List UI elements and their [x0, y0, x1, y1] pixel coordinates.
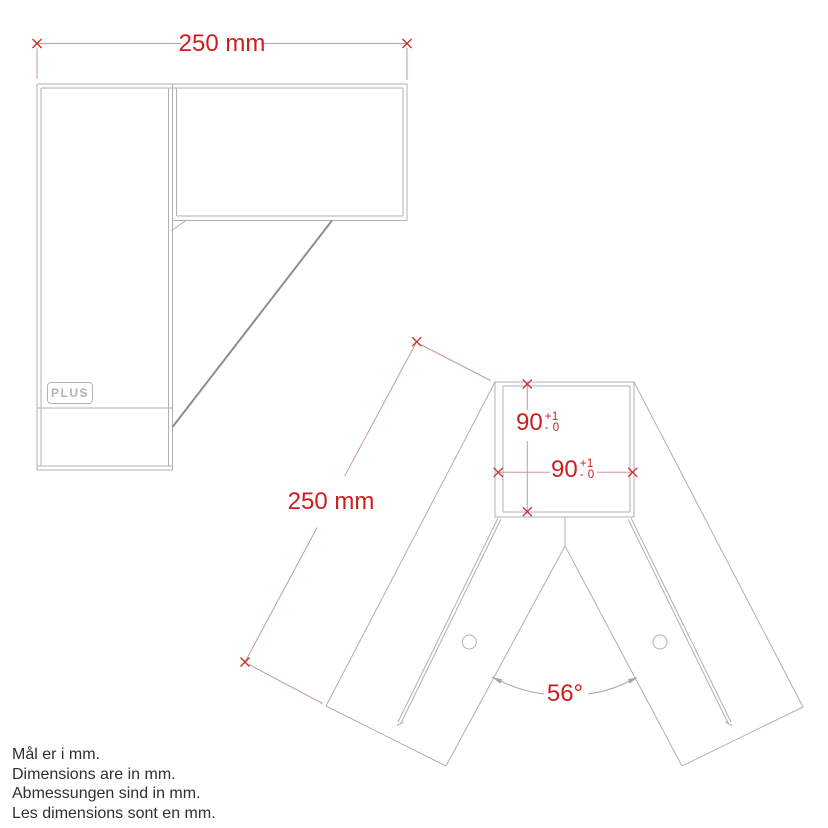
dimension-notes: Mål er i mm. Dimensions are in mm. Abmes… [12, 745, 216, 823]
plus-brand-logo: PLUS [47, 382, 93, 404]
angle-arc-arrowhead-left [492, 677, 502, 684]
technical-drawing-page: 250 mm 250 mm 90 +1 - 0 90 +1 - 0 56° PL… [0, 0, 828, 828]
side-view-part-outline [37, 84, 407, 470]
dim-tick [412, 337, 421, 346]
right-leg-hole [653, 635, 667, 649]
front-view-part-outline [326, 382, 803, 766]
front-view-dimension-250 [245, 342, 491, 704]
pocket-width-tol-minus: - 0 [580, 470, 595, 482]
angle-label: 56° [529, 681, 601, 707]
note-danish: Mål er i mm. [12, 745, 216, 765]
pocket-height-value: 90 [516, 411, 543, 435]
angle-arc-arrowhead-right [628, 678, 637, 684]
dim-tick [241, 658, 250, 667]
drawing-canvas [0, 0, 828, 828]
pocket-width-value: 90 [551, 458, 578, 482]
front-view-length-label: 250 mm [261, 489, 401, 515]
left-leg-hole [462, 635, 476, 649]
pocket-height-tol-minus: - 0 [545, 423, 560, 435]
pocket-height-label: 90 +1 - 0 [516, 411, 560, 435]
note-german: Abmessungen sind in mm. [12, 784, 216, 804]
pocket-width-label: 90 +1 - 0 [551, 458, 595, 482]
side-view-diagonal-strap [173, 221, 333, 428]
note-french: Les dimensions sont en mm. [12, 804, 216, 824]
side-view-width-label: 250 mm [152, 31, 292, 57]
note-english: Dimensions are in mm. [12, 765, 216, 785]
